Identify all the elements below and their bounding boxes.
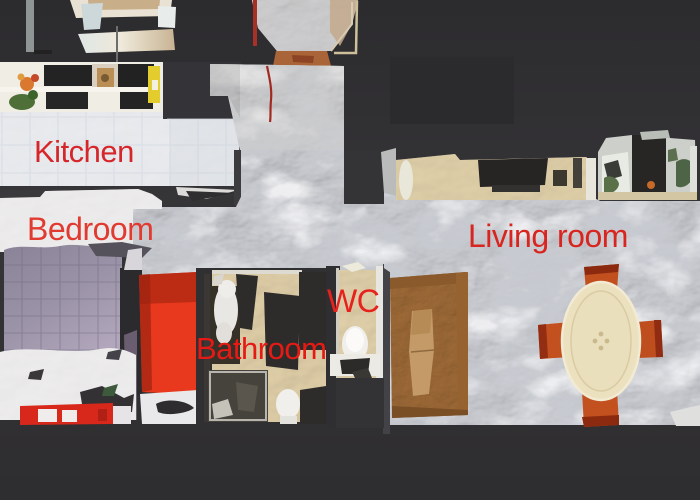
svg-text:Bedroom: Bedroom bbox=[27, 211, 153, 247]
svg-text:Bathroom: Bathroom bbox=[196, 331, 326, 366]
svg-text:Living room: Living room bbox=[468, 218, 628, 254]
svg-text:Kitchen: Kitchen bbox=[34, 134, 134, 169]
svg-text:WC: WC bbox=[327, 283, 379, 319]
